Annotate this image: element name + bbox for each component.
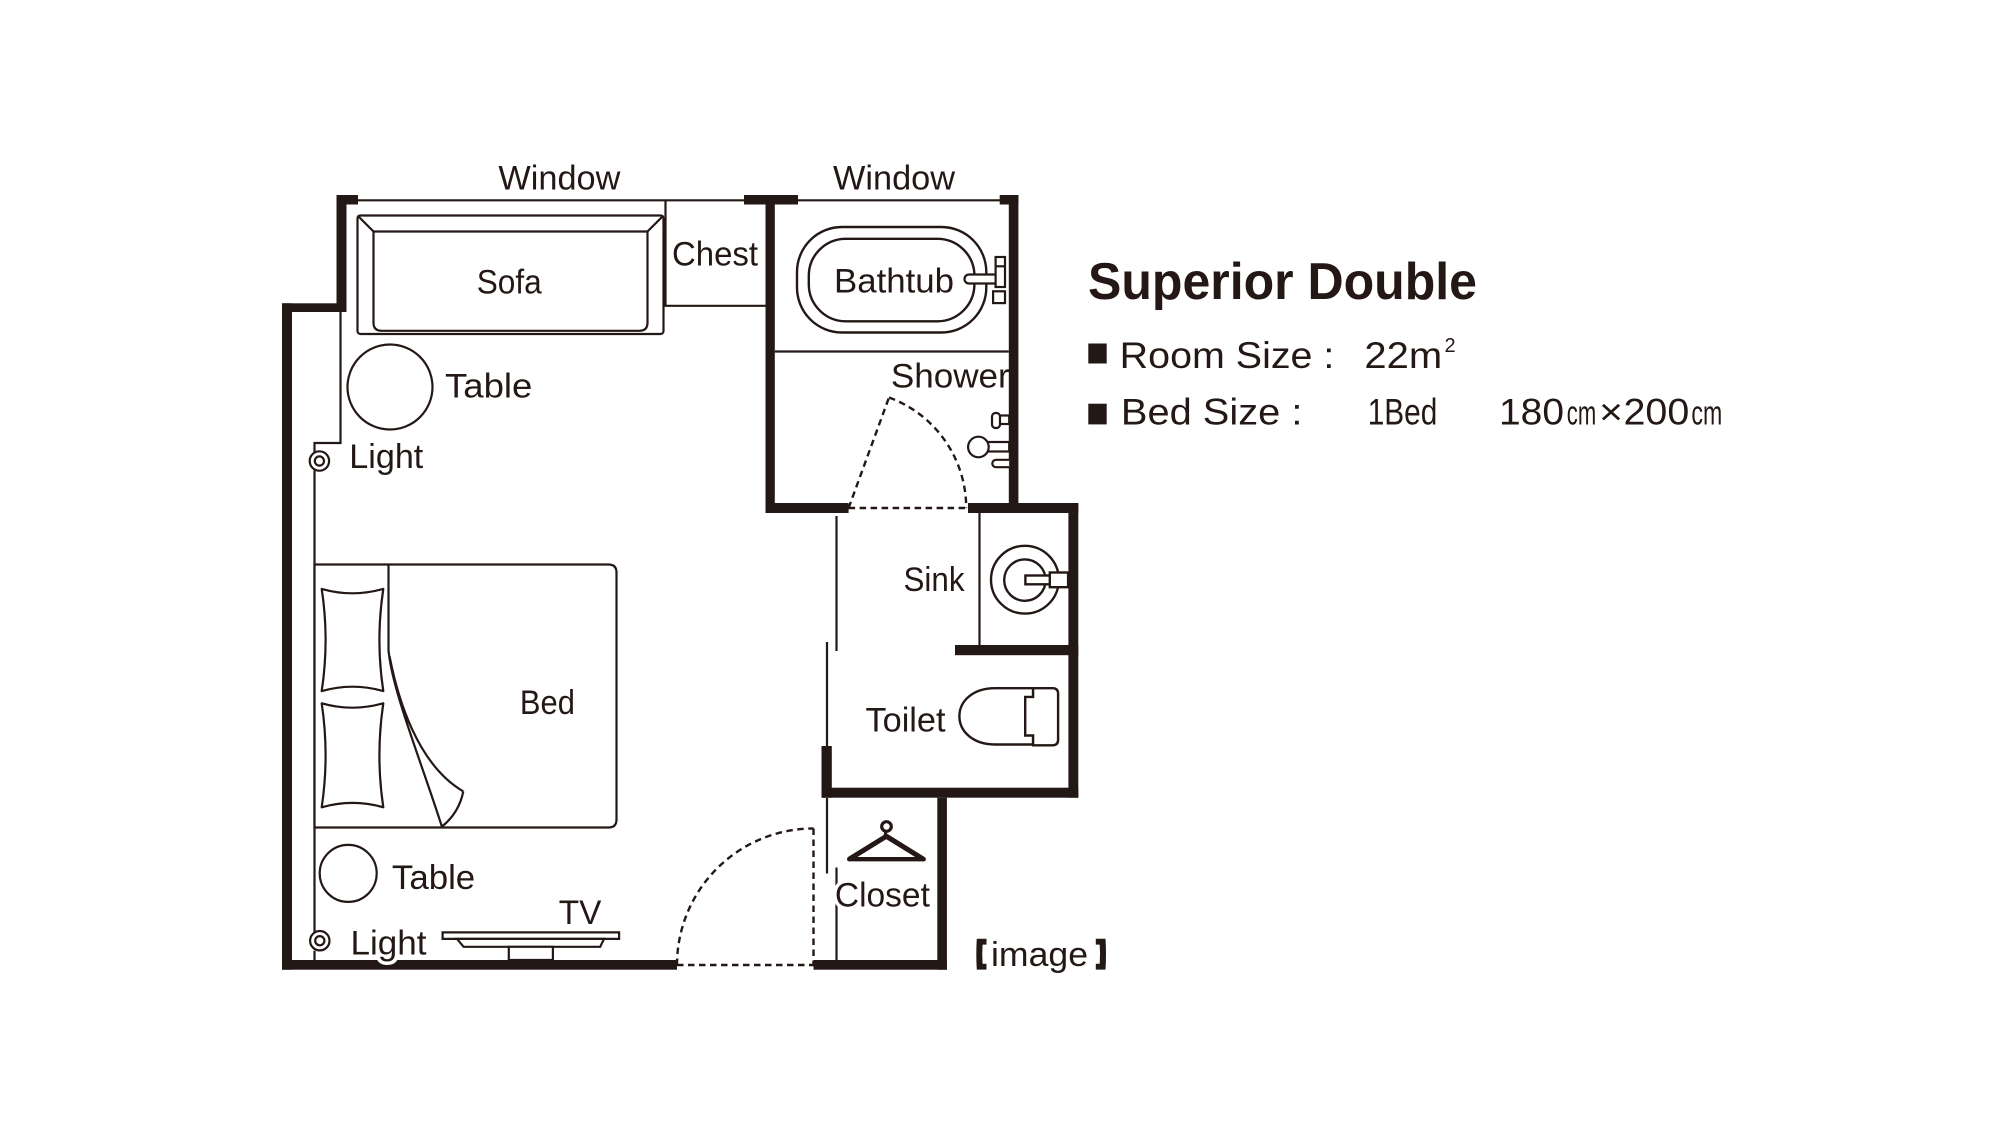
svg-text:Room Size :: Room Size : [1120,335,1335,376]
svg-text:Chest: Chest [672,236,759,274]
svg-text:Shower: Shower [891,358,1010,396]
svg-text:TV: TV [559,894,602,932]
svg-text:Closet: Closet [835,877,931,915]
svg-text:Sofa: Sofa [477,264,542,302]
svg-text:Sink: Sink [904,561,966,599]
svg-text:Light: Light [349,438,424,476]
svg-text:image: image [991,936,1088,974]
svg-text:Table: Table [392,859,475,897]
svg-text:Bed Size :: Bed Size : [1121,391,1303,432]
svg-text:Bed: Bed [520,684,575,722]
svg-text:200: 200 [1624,391,1690,432]
svg-text:cm: cm [1567,394,1596,432]
svg-text:22m: 22m [1364,335,1442,376]
svg-text:Light: Light [351,924,428,962]
svg-text:Toilet: Toilet [866,702,947,740]
svg-text:Bathtub: Bathtub [834,263,954,301]
svg-text:180: 180 [1499,391,1564,432]
svg-text:1Bed: 1Bed [1368,391,1438,432]
svg-text:Superior Double: Superior Double [1088,253,1477,311]
svg-text:cm: cm [1691,394,1722,432]
svg-text:Window: Window [833,160,955,198]
svg-text:Window: Window [498,160,620,198]
svg-text:Table: Table [445,367,532,405]
svg-text:×: × [1599,391,1623,432]
svg-text:2: 2 [1445,335,1456,357]
